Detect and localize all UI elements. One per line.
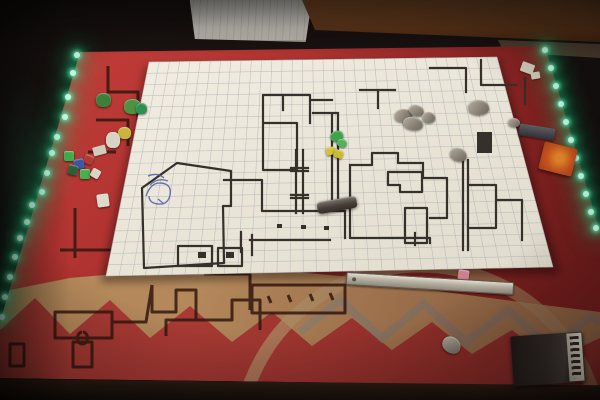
led-light-11 [12, 254, 18, 260]
mini-green-3 [136, 103, 147, 114]
die-green-2 [80, 169, 90, 179]
eraser-black [518, 123, 555, 140]
led-light-6 [44, 170, 50, 176]
led-light-5 [49, 150, 55, 156]
led-light-18 [558, 101, 564, 107]
led-light-12 [7, 274, 13, 280]
led-light-16 [548, 65, 554, 71]
paper-scrap-1 [92, 144, 107, 156]
led-light-24 [588, 209, 594, 215]
paper-scrap-3 [530, 71, 540, 79]
mini-gray-3 [402, 116, 423, 131]
mini-gray-5 [449, 146, 468, 162]
ruler [346, 272, 514, 295]
led-light-14 [0, 314, 5, 320]
mini-gray-7 [508, 118, 520, 127]
die-yellow-2 [333, 149, 344, 159]
led-light-7 [39, 189, 45, 195]
objects-layer [0, 0, 600, 400]
led-light-22 [578, 173, 584, 179]
led-light-17 [553, 83, 559, 89]
die-metal [440, 334, 464, 357]
mini-gray-4 [421, 111, 435, 124]
led-light-2 [65, 94, 71, 100]
die-white-2 [96, 193, 110, 208]
led-light-13 [2, 294, 8, 300]
pen [316, 196, 357, 215]
led-light-1 [70, 70, 76, 76]
tabletop-photo-scene [0, 0, 600, 400]
die-white-1 [89, 167, 101, 179]
led-light-15 [542, 47, 548, 53]
mini-yellow [118, 127, 131, 139]
led-light-25 [593, 225, 599, 231]
led-light-20 [568, 137, 574, 143]
led-light-8 [29, 202, 35, 208]
mini-gray-6 [467, 99, 489, 116]
led-light-10 [17, 235, 23, 241]
led-light-23 [583, 191, 589, 197]
led-light-9 [24, 219, 30, 225]
led-light-0 [74, 52, 80, 58]
led-light-4 [54, 134, 60, 140]
die-green-1 [64, 151, 74, 161]
card-orange [538, 141, 578, 176]
mini-green-1 [96, 93, 111, 107]
card-deck [510, 332, 585, 387]
led-light-3 [62, 114, 68, 120]
die-darkgreen [67, 164, 79, 176]
led-light-19 [563, 119, 569, 125]
mini-white [106, 132, 120, 148]
die-red [83, 154, 95, 166]
token-green-2 [336, 138, 347, 148]
